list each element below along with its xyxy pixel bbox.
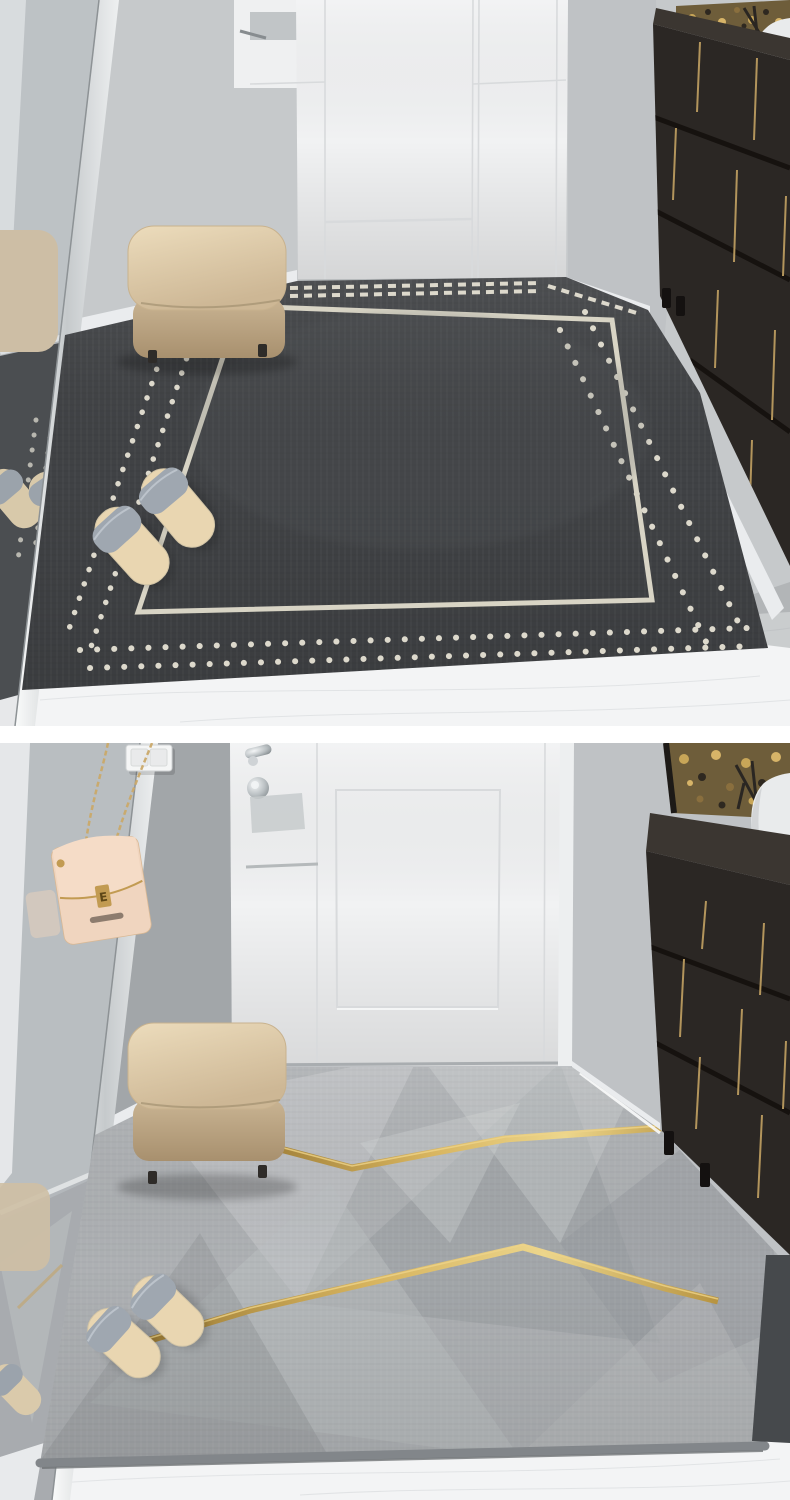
ottoman-cushion <box>128 226 286 310</box>
light-switch <box>126 745 175 775</box>
panel-separator <box>0 726 790 743</box>
ottoman-foot <box>148 1171 157 1184</box>
cabinet-leg <box>676 296 685 316</box>
entry-door <box>250 0 568 282</box>
ottoman-shadow <box>117 1174 297 1200</box>
panel-bottom-light-mat-scene: E <box>0 743 790 1500</box>
ottoman-cushion <box>128 1023 286 1109</box>
product-showcase: E <box>0 0 790 1500</box>
ottoman-foot <box>258 1165 267 1178</box>
panel-top-dark-mat-scene <box>0 0 790 726</box>
cabinet-leg <box>664 1131 674 1155</box>
cabinet-leg <box>662 288 671 308</box>
ottoman-foot <box>148 350 157 363</box>
beige-ottoman <box>117 226 297 375</box>
ottoman-foot <box>258 344 267 357</box>
lock-plate-reflection <box>250 793 305 833</box>
entry-door <box>230 743 560 1066</box>
cabinet-leg <box>700 1163 710 1187</box>
